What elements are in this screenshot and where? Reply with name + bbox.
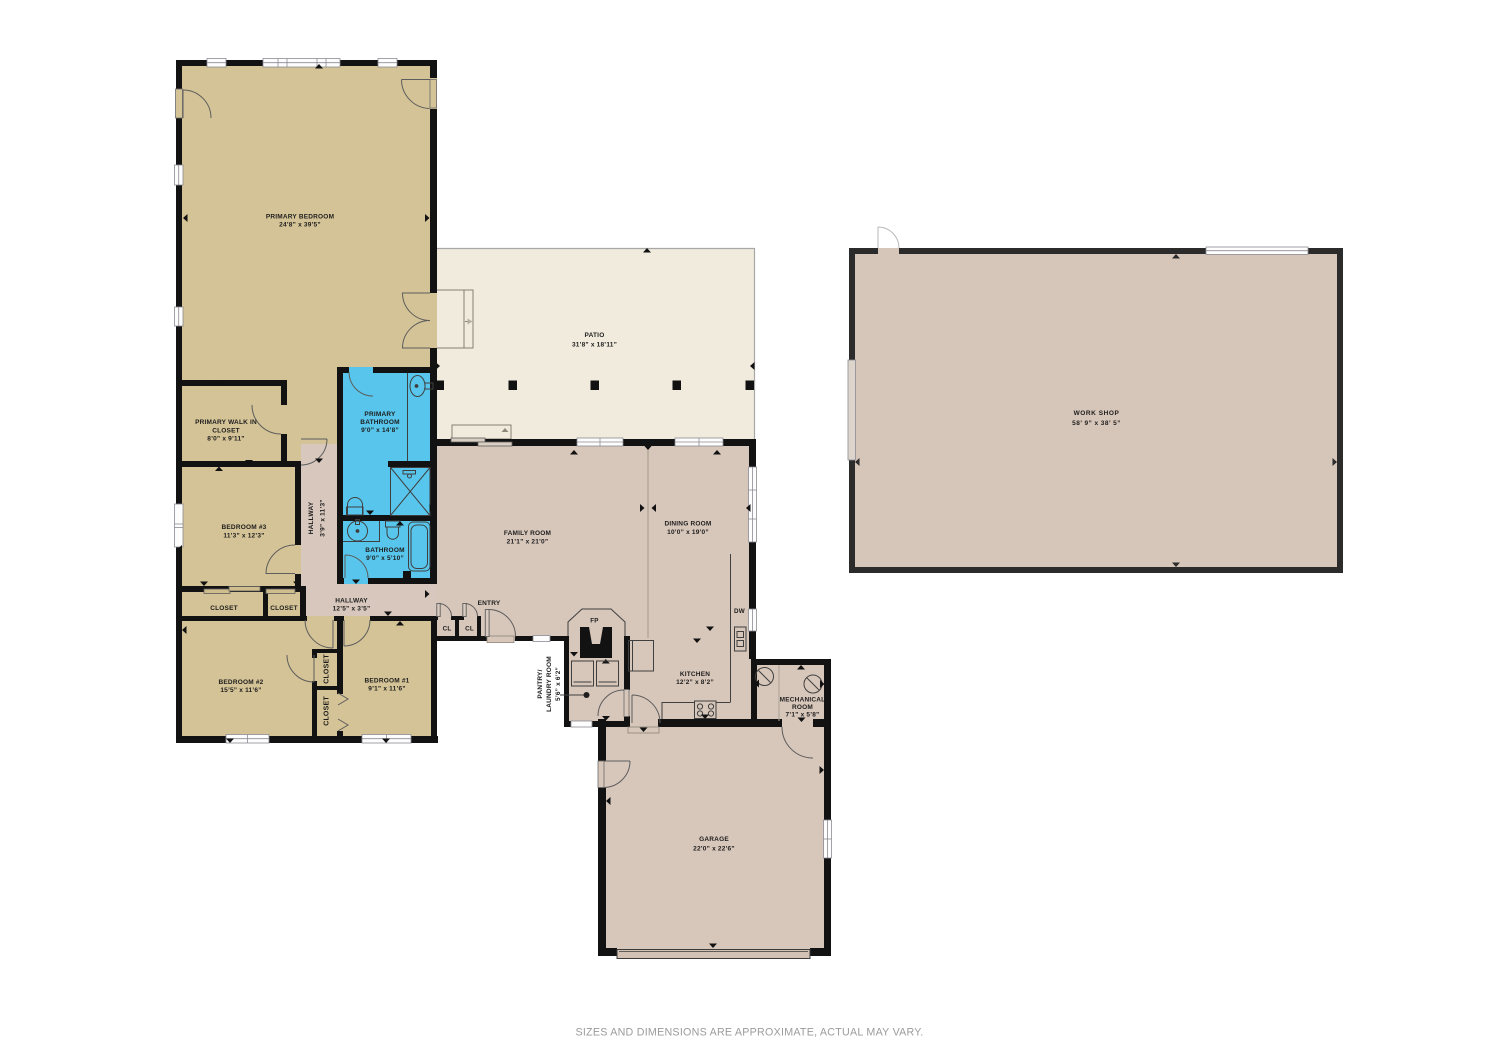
svg-text:CLOSET: CLOSET xyxy=(324,654,331,684)
svg-text:10’0” x 19’0”: 10’0” x 19’0” xyxy=(667,529,709,536)
svg-text:58’ 9” x 38’ 5”: 58’ 9” x 38’ 5” xyxy=(1072,420,1121,427)
svg-text:BEDROOM #1: BEDROOM #1 xyxy=(365,678,410,685)
svg-text:BATHROOM: BATHROOM xyxy=(365,547,404,554)
svg-text:CLOSET: CLOSET xyxy=(324,696,331,726)
svg-text:CLOSET: CLOSET xyxy=(212,428,240,435)
svg-text:LAUNDRY ROOM: LAUNDRY ROOM xyxy=(546,656,553,712)
svg-text:MECHANICAL: MECHANICAL xyxy=(780,697,826,704)
svg-text:22’0” x 22’6”: 22’0” x 22’6” xyxy=(693,846,735,853)
svg-text:31’8” x 18’11”: 31’8” x 18’11” xyxy=(572,342,617,349)
svg-text:5’6” x 6’2”: 5’6” x 6’2” xyxy=(555,667,562,701)
svg-text:3’9” x 11’3”: 3’9” x 11’3” xyxy=(320,499,327,536)
svg-text:CLOSET: CLOSET xyxy=(270,605,298,612)
svg-text:PATIO: PATIO xyxy=(585,332,605,339)
svg-text:WORK SHOP: WORK SHOP xyxy=(1074,410,1120,417)
svg-text:15’5” x 11’6”: 15’5” x 11’6” xyxy=(220,687,261,694)
svg-text:DW: DW xyxy=(734,608,745,615)
svg-text:8’0” x 9’11”: 8’0” x 9’11” xyxy=(207,436,244,443)
svg-text:ROOM: ROOM xyxy=(792,704,813,711)
svg-text:11’3” x 12’3”: 11’3” x 12’3” xyxy=(223,533,264,540)
svg-text:BEDROOM #2: BEDROOM #2 xyxy=(219,679,264,686)
svg-text:PRIMARY WALK IN: PRIMARY WALK IN xyxy=(195,419,257,426)
svg-text:BEDROOM #3: BEDROOM #3 xyxy=(222,524,267,531)
svg-text:FAMILY ROOM: FAMILY ROOM xyxy=(504,530,551,537)
svg-text:FP: FP xyxy=(590,618,598,625)
svg-text:HALLWAY: HALLWAY xyxy=(308,501,315,534)
svg-text:PRIMARY BEDROOM: PRIMARY BEDROOM xyxy=(266,214,334,221)
svg-text:12’2” x 8’2”: 12’2” x 8’2” xyxy=(676,679,714,686)
svg-text:HALLWAY: HALLWAY xyxy=(335,598,368,605)
svg-text:12’5” x 3’5”: 12’5” x 3’5” xyxy=(333,606,371,613)
svg-text:9’1” x 11’6”: 9’1” x 11’6” xyxy=(368,686,405,693)
svg-text:9’0” x 14’8”: 9’0” x 14’8” xyxy=(361,427,399,434)
svg-text:KITCHEN: KITCHEN xyxy=(680,671,710,678)
svg-text:PANTRY/: PANTRY/ xyxy=(537,669,544,698)
svg-text:PRIMARY: PRIMARY xyxy=(364,411,396,418)
svg-text:7’1” x 5’8”: 7’1” x 5’8” xyxy=(786,712,820,719)
svg-text:CL: CL xyxy=(465,626,474,633)
svg-text:DINING ROOM: DINING ROOM xyxy=(665,521,712,528)
svg-text:24’8” x 39’5”: 24’8” x 39’5” xyxy=(279,222,321,229)
svg-text:BATHROOM: BATHROOM xyxy=(360,419,399,426)
svg-text:9’0” x 5’10”: 9’0” x 5’10” xyxy=(366,555,404,562)
svg-text:CLOSET: CLOSET xyxy=(210,605,238,612)
svg-text:ENTRY: ENTRY xyxy=(478,600,501,607)
svg-text:21’1” x 21’0”: 21’1” x 21’0” xyxy=(507,539,549,546)
svg-text:CL: CL xyxy=(443,626,452,633)
svg-text:SIZES AND DIMENSIONS ARE APPRO: SIZES AND DIMENSIONS ARE APPROXIMATE, AC… xyxy=(575,1027,923,1039)
svg-text:GARAGE: GARAGE xyxy=(699,836,729,843)
